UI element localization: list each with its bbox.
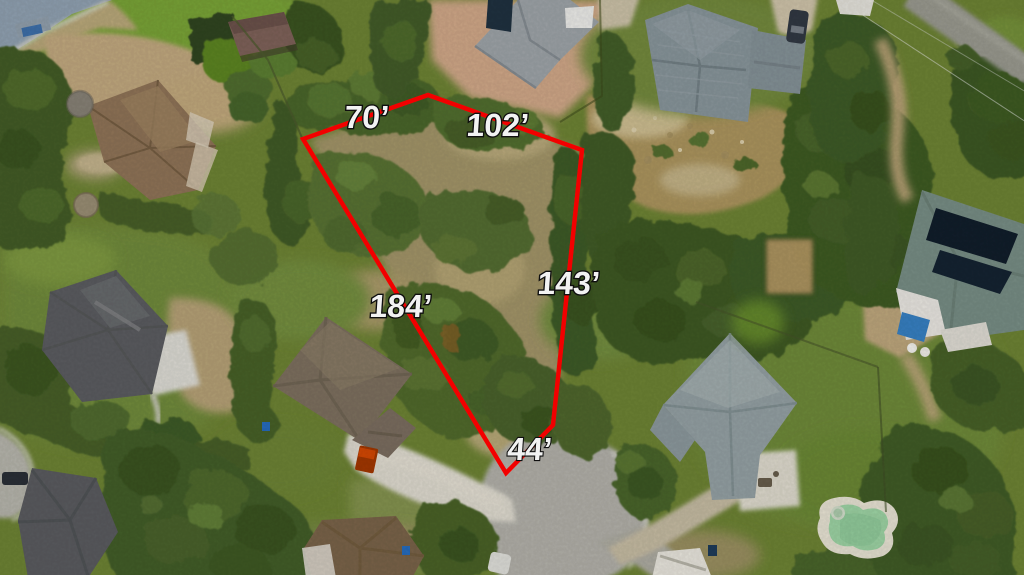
- svg-text:184’: 184’: [368, 288, 433, 324]
- svg-text:44’: 44’: [506, 431, 553, 467]
- svg-text:102’: 102’: [465, 107, 530, 143]
- svg-text:143’: 143’: [536, 265, 601, 301]
- svg-text:70’: 70’: [343, 99, 390, 135]
